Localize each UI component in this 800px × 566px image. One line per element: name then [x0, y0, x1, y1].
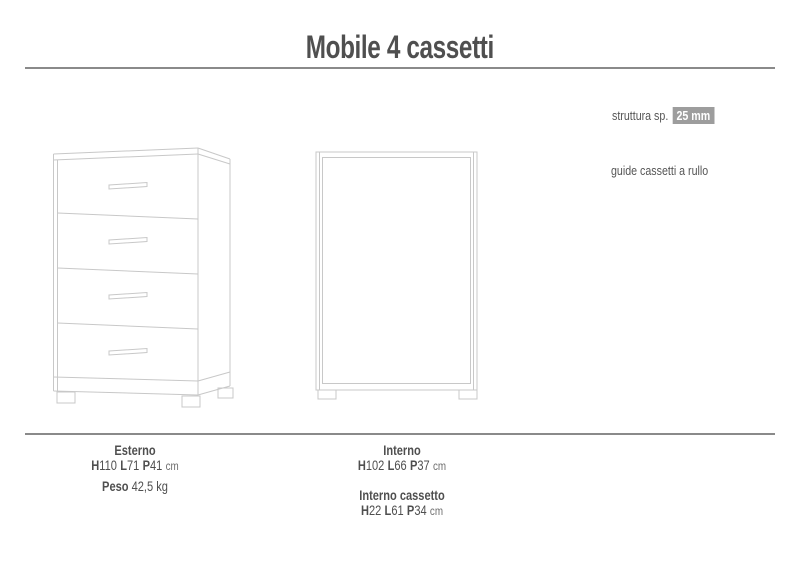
cabinet-front-drawing	[40, 140, 240, 412]
page-title-row: Mobile 4 cassetti	[0, 30, 800, 64]
peso-value: 42,5 kg	[132, 479, 168, 494]
footer-divider	[25, 433, 775, 435]
carcass-feet	[318, 390, 477, 399]
drawer-divider-lines	[58, 213, 199, 329]
structure-thickness-label: struttura sp.	[612, 106, 668, 125]
interno-title: Interno	[312, 443, 492, 458]
header-divider	[25, 67, 775, 69]
structure-thickness-row: struttura sp. 25 mm	[612, 106, 714, 125]
interno-cassetto-dimensions: H22L61P34cm	[312, 503, 492, 519]
carcass-frame-lines	[316, 152, 477, 390]
cabinet-interior-drawing	[300, 140, 500, 412]
structure-thickness-value-badge: 25 mm	[672, 107, 714, 124]
interno-spec-block: Interno H102L66P37cm Interno cassetto H2…	[312, 443, 492, 519]
interno-cassetto-title: Interno cassetto	[312, 488, 492, 503]
esterno-title: Esterno	[45, 443, 225, 458]
esterno-dimensions: H110L71P41cm	[45, 458, 225, 474]
peso-line: Peso 42,5 kg	[45, 479, 225, 494]
drawer-handles	[109, 183, 147, 356]
cabinet-feet	[57, 388, 233, 407]
esterno-spec-block: Esterno H110L71P41cm Peso 42,5 kg	[45, 443, 225, 494]
drawer-guides-note: guide cassetti a rullo	[611, 161, 708, 180]
product-spec-sheet: Mobile 4 cassetti	[0, 0, 800, 566]
page-title: Mobile 4 cassetti	[306, 30, 494, 64]
interno-dimensions: H102L66P37cm	[312, 458, 492, 474]
peso-label: Peso	[102, 479, 128, 494]
